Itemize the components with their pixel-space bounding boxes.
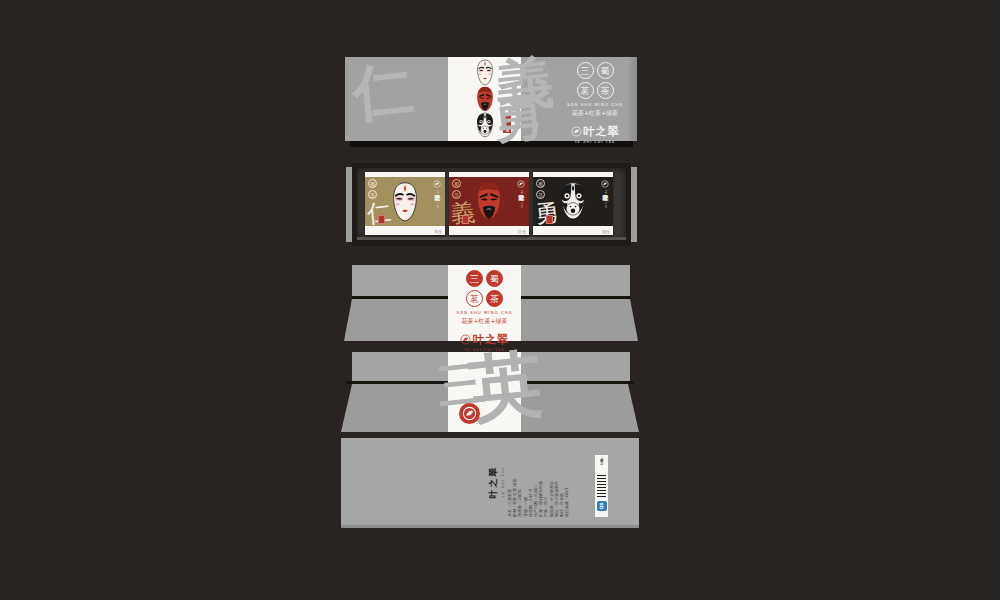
rotated-brand-logo: 叶之翠 YE ZHI CUI [486,459,506,505]
net-weight-label: 净含量:150g [600,456,604,474]
brand-logo-vertical: 叶之翠 YE ZHI CUI [515,180,527,208]
brand-seal-icon [462,406,477,421]
seal-char: 蜀 [452,179,461,188]
brand-name: 叶之翠 [584,124,620,139]
seal-char: 蜀 [368,179,377,188]
seal-char: 茗 [466,290,483,307]
box-front-black: 蜀 茶 勇 叶之翠 YE ZHI CUI [533,177,613,226]
flavor-label: 花茶 [434,229,442,234]
brand-logo-block: 三 蜀 茗 茶 SAN SHU MING CHA 花茶+红茶+绿茶 叶之翠 YE… [557,62,633,144]
red-stamp [378,215,385,224]
brand-name: 叶之翠 [473,332,509,347]
mini-seal-column: 蜀 茶 [536,179,545,199]
guan-yu-mask-icon [472,179,506,224]
brand-logo-vertical: 叶之翠 YE ZHI CUI [431,180,443,208]
brand-seal-icon [460,334,471,345]
liu-bei-mask-icon [388,179,422,224]
brand-seal-icon [517,180,525,188]
brand-name-english: YE ZHI CUI TEA [557,140,633,144]
seal-char: 茶 [452,190,461,199]
brand-name-english: YE ZHI CUI [520,190,523,208]
series-chinese: 花茶+红茶+绿茶 [557,109,633,118]
red-tag-label: 名茶 [503,115,511,133]
brand-logo-block-red: 三 蜀 茗 茶 SAN SHU MING CHA 花茶+红茶+绿茶 叶之翠 YE… [448,270,521,352]
liu-bei-mask-icon [473,59,497,86]
center-white-strip [448,352,521,432]
mini-seal-column: 蜀 茶 [368,179,377,199]
seal-char: 茶 [536,190,545,199]
series-english: SAN SHU MING CHA [557,102,633,107]
flavor-label: 绿茶 [602,229,610,234]
info-line: 执行标准：GB/T [564,455,569,517]
brand-name-english: YE ZHI CUI [604,190,607,208]
red-stamp [546,215,553,224]
panel-lid-front: 仁 義 勇 名茶 三 蜀 茗 茶 SAN SHU MING CHA 花茶+红茶+… [345,57,637,141]
seal-char: 蜀 [536,179,545,188]
rotated-product-info: 品名：三蜀名茶 配料：花茶 红茶 绿茶 净含量：150克 等级：一级 保质期：2… [509,455,567,517]
seal-char: 茗 [577,82,594,99]
box-front-maroon: 蜀 茶 義 叶之翠 YE ZHI CUI [449,177,529,226]
brand-logo-vertical: 叶之翠 YE ZHI CUI [599,180,611,208]
brand-name-english: YE ZHI CUI [436,190,439,208]
brand-name-english: YE ZHI CUI TEA [448,348,521,352]
red-stamp [462,215,469,224]
brand-name: 叶之翠 [487,459,500,505]
packaging-presentation: 仁 義 勇 名茶 三 蜀 茗 茶 SAN SHU MING CHA 花茶+红茶+… [0,0,1000,600]
red-round-seal [459,403,480,424]
seal-char: 蜀 [597,62,614,79]
box-front-gold: 蜀 茶 仁 叶之翠 YE ZHI CUI [365,177,445,226]
zhang-fei-mask-icon [556,179,590,224]
watermark-character: 仁 [350,58,416,124]
mini-seal-column: 蜀 茶 [452,179,461,199]
tea-box-yong: 蜀 茶 勇 叶之翠 YE ZHI CUI 绿茶 [533,172,613,235]
seal-char: 三 [466,270,483,287]
barcode [597,475,606,499]
guan-yu-mask-icon [473,86,497,113]
brand-name-english: YE ZHI CUI [501,459,505,505]
flavor-label: 红茶 [518,229,526,234]
brand-seal-icon [433,180,441,188]
seal-char: 三 [577,62,594,79]
qs-certification-icon: QS [597,501,607,511]
brand-seal-icon [571,126,582,137]
brand-seal-grid: 三 蜀 茗 茶 [448,270,521,307]
series-chinese: 花茶+红茶+绿茶 [448,317,521,326]
tea-box-ren: 蜀 茶 仁 叶之翠 YE ZHI CUI 花茶 [365,172,445,235]
barcode-strip: 净含量:150g QS [595,455,608,517]
seal-char: 茶 [368,190,377,199]
zhang-fei-mask-icon [473,112,497,139]
seal-char: 蜀 [486,270,503,287]
brand-seal-icon [601,180,609,188]
seal-char: 茶 [486,290,503,307]
tea-box-yi: 蜀 茶 義 叶之翠 YE ZHI CUI 红茶 [449,172,529,235]
center-white-strip: 名茶 [448,57,521,141]
brand-seal-grid: 三 蜀 茗 茶 [557,62,633,99]
seal-char: 茶 [597,82,614,99]
niche-right-edge [631,167,637,242]
series-english: SAN SHU MING CHA [448,310,521,315]
panel-back-flap: 叶之翠 YE ZHI CUI 品名：三蜀名茶 配料：花茶 红茶 绿茶 净含量：1… [341,438,639,528]
